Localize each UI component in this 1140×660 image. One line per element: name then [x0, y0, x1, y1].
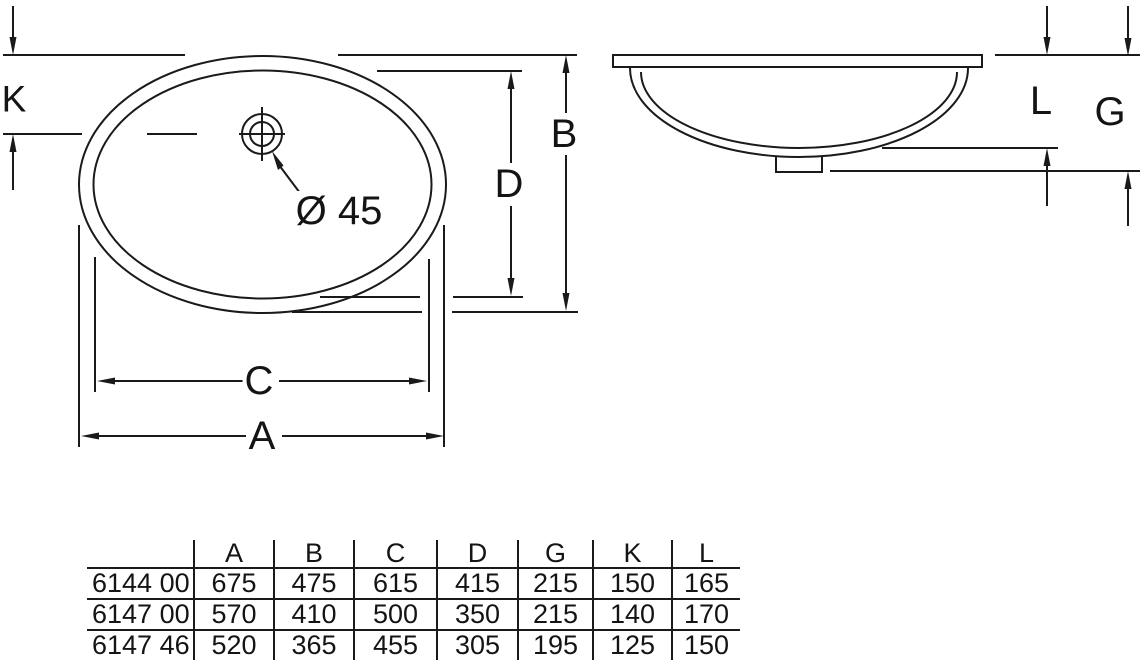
table-header-model — [87, 540, 194, 568]
faucet-hole — [239, 107, 285, 161]
table-cell: 165 — [672, 568, 740, 599]
rim-section — [613, 55, 982, 67]
technical-drawing-page: K B D C A Ø 45 L G A B C D G K L 6144 0 — [0, 0, 1140, 660]
table-cell: 215 — [518, 599, 593, 630]
side-view — [613, 6, 1140, 226]
table-cell: 150 — [672, 630, 740, 660]
hole-diameter-label: Ø 45 — [294, 191, 385, 231]
table-row: 6147 46 520 365 455 305 195 125 150 — [87, 630, 740, 660]
drain-fitting — [776, 156, 822, 172]
dim-label-c: C — [243, 361, 276, 401]
model-number: 6147 46 — [87, 630, 194, 660]
table-row: 6144 00 675 475 615 415 215 150 165 — [87, 568, 740, 599]
table-cell: 140 — [593, 599, 672, 630]
table-header-k: K — [593, 540, 672, 568]
table-cell: 675 — [194, 568, 274, 599]
table-cell: 500 — [354, 599, 437, 630]
table-header-b: B — [274, 540, 354, 568]
model-number: 6147 00 — [87, 599, 194, 630]
table-cell: 365 — [274, 630, 354, 660]
table-row: 6147 00 570 410 500 350 215 140 170 — [87, 599, 740, 630]
top-view — [3, 6, 578, 447]
dimension-table: A B C D G K L 6144 00 675 475 615 415 21… — [87, 540, 740, 660]
table-cell: 615 — [354, 568, 437, 599]
table-cell: 410 — [274, 599, 354, 630]
model-number: 6144 00 — [87, 568, 194, 599]
table-header-c: C — [354, 540, 437, 568]
table-cell: 125 — [593, 630, 672, 660]
dim-label-g: G — [1092, 92, 1127, 132]
table-header-d: D — [437, 540, 518, 568]
table-header-a: A — [194, 540, 274, 568]
table-header-row: A B C D G K L — [87, 540, 740, 568]
table-header-g: G — [518, 540, 593, 568]
table-cell: 455 — [354, 630, 437, 660]
table-cell: 305 — [437, 630, 518, 660]
table-cell: 415 — [437, 568, 518, 599]
basin-outer-ellipse — [79, 56, 446, 313]
basin-inner-ellipse — [94, 71, 432, 299]
table-cell: 350 — [437, 599, 518, 630]
table-cell: 570 — [194, 599, 274, 630]
hole-leader-line — [272, 151, 300, 193]
dim-label-k: K — [0, 81, 28, 118]
table-cell: 520 — [194, 630, 274, 660]
dim-label-l: L — [1028, 81, 1054, 121]
dim-label-a: A — [247, 416, 278, 456]
bowl-outer-wall — [630, 68, 968, 157]
table-cell: 150 — [593, 568, 672, 599]
table-cell: 215 — [518, 568, 593, 599]
table-cell: 170 — [672, 599, 740, 630]
bowl-inner-wall — [641, 72, 957, 148]
table-cell: 195 — [518, 630, 593, 660]
dim-label-d: D — [493, 164, 526, 204]
table-header-l: L — [672, 540, 740, 568]
dimension-b — [563, 55, 570, 311]
dim-label-b: B — [549, 114, 580, 154]
table-cell: 475 — [274, 568, 354, 599]
